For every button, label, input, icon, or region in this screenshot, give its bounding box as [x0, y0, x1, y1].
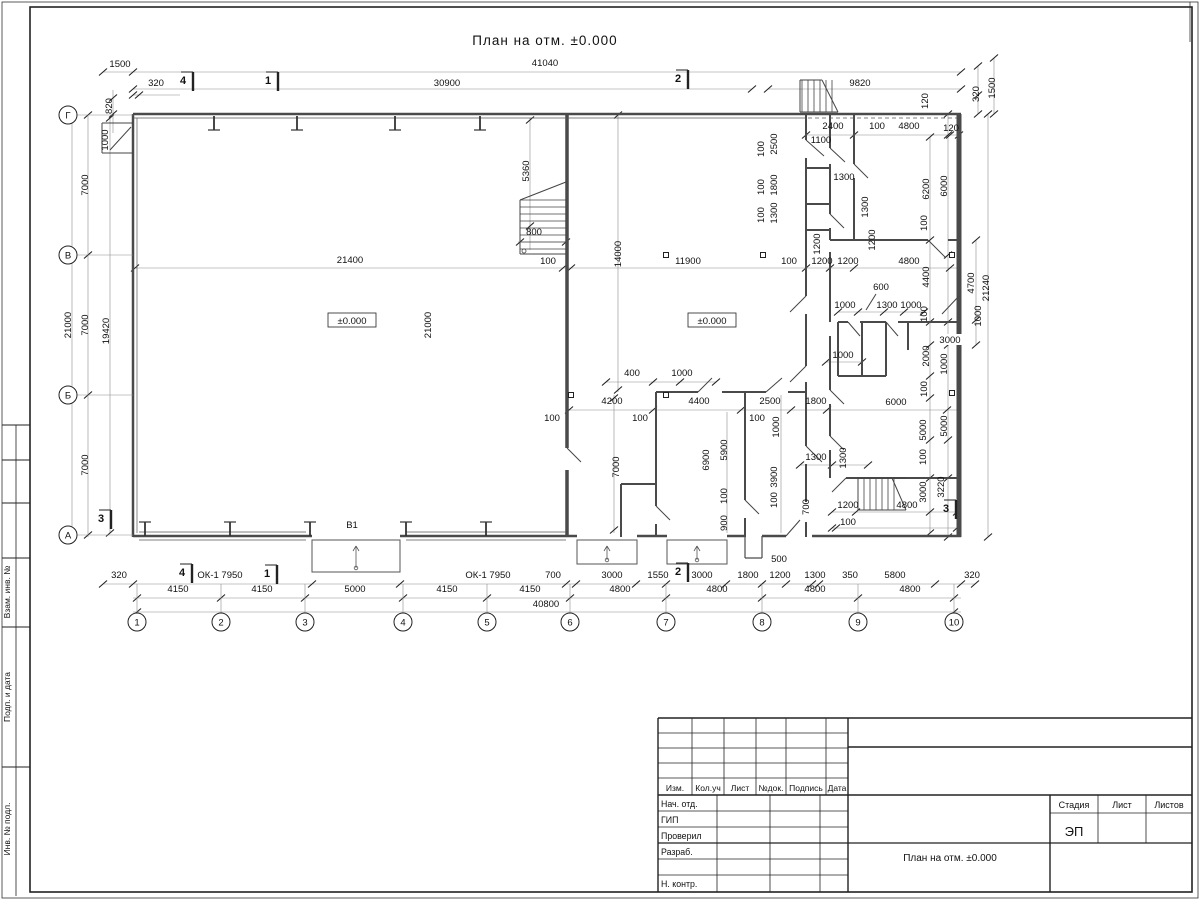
- dimension-label: 1200: [837, 500, 858, 511]
- dimension-label: 100: [756, 207, 767, 223]
- dimension-label: 3000: [691, 570, 712, 581]
- dimension-label: 4800: [898, 256, 919, 267]
- dimension-label: 1100: [811, 135, 831, 146]
- dimension-label: 4150: [251, 584, 272, 595]
- drawing-sheet: План на отм. ±0.000 12345678910ГВБА41040…: [0, 0, 1200, 900]
- dimension-label: 350: [842, 570, 858, 581]
- dimension-label: 41040: [532, 58, 558, 69]
- door-leaf: [886, 322, 898, 336]
- dimension-label: 500: [771, 554, 787, 565]
- dimension-label: 7000: [80, 314, 91, 335]
- dimension-label: 4700: [966, 272, 977, 293]
- side-stamp-label: Подп. и дата: [2, 672, 12, 722]
- dimension-label: 100: [769, 492, 780, 508]
- door-leaf: [567, 448, 581, 462]
- dimension-label: 120: [920, 93, 931, 109]
- column-marker: [761, 253, 766, 258]
- dimension-label: 14000: [613, 241, 624, 267]
- title-block-header: Дата: [828, 783, 847, 793]
- dimension-label: 1200: [867, 229, 878, 250]
- axis-label: 3: [302, 618, 307, 629]
- loading-dock-symbol: [604, 546, 607, 551]
- stair-symbol: [520, 182, 566, 200]
- doc-title: План на отм. ±0.000: [903, 853, 997, 864]
- dimension-label: 4200: [601, 396, 622, 407]
- dimension-label: 7000: [611, 456, 622, 477]
- dimension-label: 100: [919, 306, 930, 322]
- dimension-label: 5900: [719, 439, 730, 460]
- door-leaf: [786, 520, 800, 536]
- title-block-header: Изм.: [666, 783, 684, 793]
- axis-label: 5: [484, 618, 489, 629]
- dimension-label: 21000: [423, 312, 434, 338]
- dimension-label: 4800: [898, 121, 919, 132]
- loading-dock-symbol: [356, 546, 359, 551]
- dimension-label: 1500: [109, 59, 130, 70]
- dimension-label: 320: [111, 570, 127, 581]
- door-leaf: [928, 240, 946, 258]
- dimension-label: 1200: [837, 256, 858, 267]
- dimension-label: 11900: [675, 256, 701, 267]
- dimension-label: 600: [873, 282, 889, 293]
- dimension-label: 320: [971, 86, 982, 102]
- dimension-label: 1800: [769, 174, 780, 195]
- dimension-label: 4800: [706, 584, 727, 595]
- dimension-label: 1300: [838, 447, 849, 468]
- role-label: ГИП: [661, 815, 678, 825]
- door-leaf: [830, 148, 845, 162]
- dimension-label: 1200: [769, 570, 790, 581]
- floor-plan-canvas: 12345678910ГВБА4104030900982015003208201…: [0, 0, 1200, 900]
- dimension-label: 6000: [939, 175, 950, 196]
- sheet-label: Лист: [1112, 800, 1132, 810]
- dimension-label: 100: [544, 413, 560, 424]
- dimension-label: 900: [719, 515, 730, 531]
- dimension-label: 5000: [344, 584, 365, 595]
- dimension-label: 21400: [337, 255, 363, 266]
- door-leaf: [866, 294, 876, 310]
- dimension-label: 1550: [647, 570, 668, 581]
- dimension-label: 820: [104, 98, 115, 114]
- dimension-label: 100: [919, 215, 930, 231]
- sheets-label: Листов: [1154, 800, 1183, 810]
- dimension-label: 1000: [771, 416, 782, 437]
- door-leaf: [656, 506, 670, 520]
- dimension-label: 3000: [918, 481, 929, 502]
- dimension-label: 5000: [939, 415, 950, 436]
- dimension-label: 4800: [609, 584, 630, 595]
- door-leaf: [942, 296, 959, 314]
- dimension-label: 30900: [434, 78, 460, 89]
- axis-label: 9: [855, 618, 860, 629]
- column-marker: [950, 253, 955, 258]
- section-mark: 3: [943, 503, 949, 515]
- side-stamp-label: Взам. инв. №: [2, 566, 12, 619]
- dimension-label: 100: [756, 141, 767, 157]
- role-label: Нач. отд.: [661, 799, 698, 809]
- dimension-label: 100: [919, 381, 930, 397]
- dimension-label: 1300: [769, 202, 780, 223]
- loading-dock-symbol: [353, 546, 356, 551]
- dimension-label: 6900: [701, 449, 712, 470]
- section-mark: 1: [264, 568, 270, 580]
- column-marker: [664, 253, 669, 258]
- dimension-label: 4800: [899, 584, 920, 595]
- dimension-label: 1300: [860, 196, 871, 217]
- dimension-label: 9820: [849, 78, 870, 89]
- axis-label: 4: [400, 618, 405, 629]
- dimension-label: 4400: [688, 396, 709, 407]
- ramp-symbol: [822, 80, 838, 112]
- axis-label: 7: [663, 618, 668, 629]
- dimension-label: 2500: [769, 133, 780, 154]
- door-leaf: [830, 390, 844, 404]
- drawing-title: План на отм. ±0.000: [395, 33, 695, 48]
- dimension-label: 100: [749, 413, 765, 424]
- dimension-label: 100: [781, 256, 797, 267]
- dimension-label: 1000: [100, 129, 111, 150]
- dimension-label: 4800: [896, 500, 917, 511]
- role-label: Н. контр.: [661, 879, 697, 889]
- dimension-label: 400: [624, 368, 640, 379]
- dimension-label: 320: [964, 570, 980, 581]
- dimension-label: 120: [943, 123, 959, 134]
- dimension-label: 5360: [521, 160, 532, 181]
- dimension-label: 320: [148, 78, 164, 89]
- dimension-label: 100: [632, 413, 648, 424]
- loading-dock-symbol: [607, 546, 610, 551]
- dimension-label: 1300: [833, 172, 854, 183]
- dimension-label: 1800: [737, 570, 758, 581]
- dimension-label: 4150: [167, 584, 188, 595]
- axis-label: 1: [134, 618, 139, 629]
- door-leaf: [766, 378, 782, 392]
- axis-label: 2: [218, 618, 223, 629]
- section-mark: 4: [180, 75, 187, 87]
- axis-label: 10: [949, 618, 960, 629]
- level-mark: ±0.000: [338, 316, 367, 327]
- axis-label: В: [65, 251, 71, 262]
- level-mark: ±0.000: [698, 316, 727, 327]
- sheet-inner-frame: [30, 7, 1192, 892]
- section-mark: 3: [98, 513, 104, 525]
- dimension-label: 100: [918, 449, 929, 465]
- dimension-label: 3000: [601, 570, 622, 581]
- dimension-label: 4800: [804, 584, 825, 595]
- dimension-label: 3900: [769, 466, 780, 487]
- title-block-header: Подпись: [789, 783, 823, 793]
- stage-value: ЭП: [1065, 824, 1084, 839]
- dimension-label: 800: [526, 227, 542, 238]
- door-leaf: [832, 478, 846, 492]
- dimension-label: 3000: [939, 335, 960, 346]
- section-mark: 2: [675, 566, 681, 578]
- title-block-header: Кол.уч: [695, 783, 721, 793]
- door-leaf: [745, 500, 759, 514]
- title-block-header: №док.: [759, 783, 784, 793]
- door-leaf: [790, 366, 806, 382]
- dimension-label: 3220: [936, 476, 947, 497]
- dimension-label: 5000: [918, 419, 929, 440]
- column-marker: [950, 391, 955, 396]
- dimension-label: 700: [801, 499, 812, 515]
- dimension-label: 700: [545, 570, 561, 581]
- dimension-label: 7000: [80, 454, 91, 475]
- door-leaf: [848, 322, 860, 336]
- axis-label: Б: [65, 391, 71, 402]
- dimension-label: 1300: [805, 452, 826, 463]
- dimension-label: 6000: [885, 397, 906, 408]
- dimension-label: 21240: [981, 275, 992, 301]
- dimension-label: 100: [869, 121, 885, 132]
- loading-dock-symbol: [697, 546, 700, 551]
- axis-label: Г: [65, 111, 70, 122]
- dimension-label: 2500: [759, 396, 780, 407]
- dimension-label: 1000: [939, 353, 950, 374]
- dimension-label: 6200: [921, 178, 932, 199]
- axis-label: А: [65, 531, 72, 542]
- section-mark: 2: [675, 73, 681, 85]
- dimension-label: 100: [840, 517, 856, 528]
- door-leaf: [790, 296, 806, 312]
- dimension-label: 100: [540, 256, 556, 267]
- sheet-outer-border: [2, 2, 1198, 898]
- dimension-label: 7000: [80, 174, 91, 195]
- window-label: ОК-1 7950: [465, 570, 510, 581]
- column-marker: [664, 393, 669, 398]
- stage-label: Стадия: [1059, 800, 1090, 810]
- door-leaf: [698, 378, 712, 392]
- door-leaf: [830, 214, 844, 228]
- dimension-label: 1000: [671, 368, 692, 379]
- dimension-label: 4150: [519, 584, 540, 595]
- window-label: ОК-1 7950: [197, 570, 242, 581]
- dimension-label: 1000: [832, 350, 853, 361]
- section-mark: 4: [179, 567, 186, 579]
- dimension-label: 1200: [811, 256, 832, 267]
- axis-label: 8: [759, 618, 764, 629]
- role-label: Проверил: [661, 831, 702, 841]
- role-label: Разраб.: [661, 847, 693, 857]
- dimension-label: 2000: [921, 345, 932, 366]
- dimension-label: 1500: [987, 77, 998, 98]
- axis-label: 6: [567, 618, 572, 629]
- dimension-label: 2400: [822, 121, 843, 132]
- section-mark: 1: [265, 75, 271, 87]
- door-leaf: [854, 164, 868, 178]
- dimension-label: 21000: [63, 312, 74, 338]
- dimension-label: 19420: [101, 318, 112, 344]
- loading-dock-symbol: [694, 546, 697, 551]
- dimension-label: 4400: [921, 266, 932, 287]
- dimension-label: 1200: [812, 233, 823, 254]
- dimension-label: 5800: [884, 570, 905, 581]
- dimension-label: 4150: [436, 584, 457, 595]
- dimension-label: 1800: [805, 396, 826, 407]
- stair-symbol: [522, 249, 526, 253]
- dimension-label: 100: [756, 179, 767, 195]
- dimension-label: 40800: [533, 599, 559, 610]
- column-marker: [569, 393, 574, 398]
- side-stamp-label: Инв. № подл.: [2, 803, 12, 856]
- dimension-label: 1300: [876, 300, 897, 311]
- title-block-header: Лист: [731, 783, 750, 793]
- dimension-label: 1000: [834, 300, 855, 311]
- gate-label: В1: [346, 520, 358, 531]
- dimension-label: 1000: [973, 305, 984, 326]
- dimension-label: 1300: [804, 570, 825, 581]
- dimension-label: 100: [719, 488, 730, 504]
